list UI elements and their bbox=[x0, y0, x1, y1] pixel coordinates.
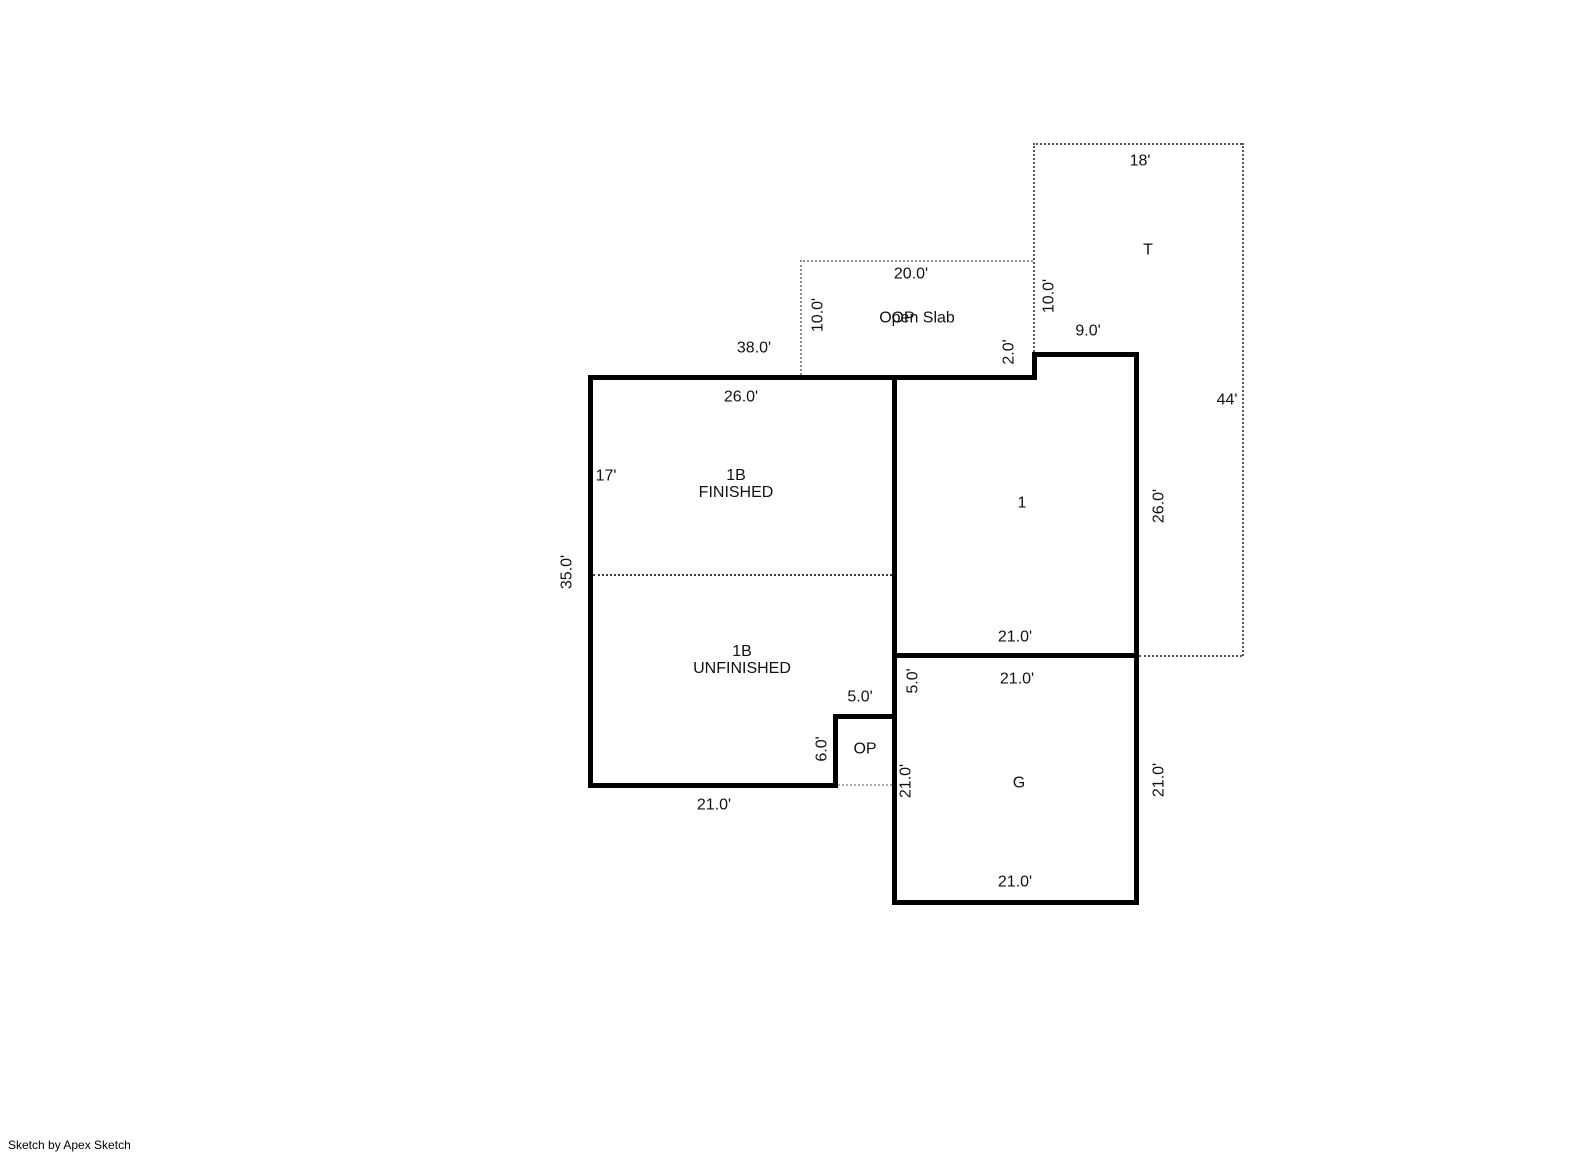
dashed-slab-top bbox=[800, 260, 1033, 262]
dim-1b-bottom: 21.0' bbox=[697, 797, 731, 814]
dim-g-left-upper: 5.0' bbox=[905, 668, 922, 693]
floorplan-canvas: 18' 44' 20.0' 9.0' 38.0' 26.0' 17' 21.0'… bbox=[0, 0, 1585, 1163]
dashed-1b-divider bbox=[593, 574, 892, 576]
dashed-slab-left bbox=[800, 260, 802, 375]
wall-right bbox=[1134, 352, 1139, 905]
dim-slab-top: 20.0' bbox=[894, 266, 928, 283]
dim-g-top: 21.0' bbox=[1000, 671, 1034, 688]
area-1b-unfinished-line1: 1B bbox=[693, 643, 791, 660]
dim-slab-left: 10.0' bbox=[810, 298, 827, 332]
dim-g-bottom: 21.0' bbox=[998, 874, 1032, 891]
area-label-op: OP bbox=[853, 741, 876, 758]
wall-divider-vertical bbox=[892, 375, 897, 905]
credit-text: Sketch by Apex Sketch bbox=[8, 1138, 131, 1152]
wall-top-main bbox=[588, 375, 1037, 380]
dim-1b-top: 26.0' bbox=[724, 389, 758, 406]
area-1b-unfinished-line2: UNFINISHED bbox=[693, 660, 791, 677]
area-1b-finished-line2: FINISHED bbox=[699, 484, 774, 501]
dim-1b-left: 35.0' bbox=[559, 555, 576, 589]
dim-main-top: 38.0' bbox=[737, 340, 771, 357]
dashed-t-bottom bbox=[1139, 655, 1242, 657]
area-label-1b-unfinished: 1B UNFINISHED bbox=[693, 643, 791, 677]
dim-slab-right: 10.0' bbox=[1041, 279, 1058, 313]
dashed-t-left bbox=[1033, 143, 1035, 352]
dim-op-left: 6.0' bbox=[814, 736, 831, 761]
wall-top-upper bbox=[1032, 352, 1139, 357]
wall-bottom-1b bbox=[588, 783, 838, 788]
dim-one-right: 26.0' bbox=[1151, 489, 1168, 523]
dim-one-bottom: 21.0' bbox=[998, 629, 1032, 646]
dashed-op-bottom bbox=[838, 784, 892, 786]
area-label-one: 1 bbox=[1018, 495, 1027, 512]
dim-op-top: 5.0' bbox=[847, 689, 872, 706]
dim-g-right: 21.0' bbox=[1151, 763, 1168, 797]
wall-op-left bbox=[833, 714, 838, 788]
area-label-1b-finished: 1B FINISHED bbox=[699, 467, 774, 501]
dim-step-right: 2.0' bbox=[1001, 339, 1018, 364]
dim-t-right: 44' bbox=[1217, 392, 1238, 409]
dim-t-top: 18' bbox=[1130, 153, 1151, 170]
wall-left-1b bbox=[588, 375, 593, 788]
area-label-garage: G bbox=[1013, 775, 1025, 792]
area-label-t: T bbox=[1143, 242, 1153, 259]
wall-g-bottom bbox=[892, 900, 1139, 905]
dashed-t-right bbox=[1242, 143, 1244, 656]
wall-op-top bbox=[833, 714, 897, 719]
dim-top-right: 9.0' bbox=[1075, 323, 1100, 340]
area-label-open-slab-overlay: OP bbox=[891, 310, 914, 327]
dashed-t-top bbox=[1033, 143, 1242, 145]
area-1b-finished-line1: 1B bbox=[699, 467, 774, 484]
wall-one-g-divider bbox=[892, 653, 1139, 658]
dim-1b-left-upper: 17' bbox=[596, 468, 617, 485]
dim-g-left: 21.0' bbox=[898, 764, 915, 798]
